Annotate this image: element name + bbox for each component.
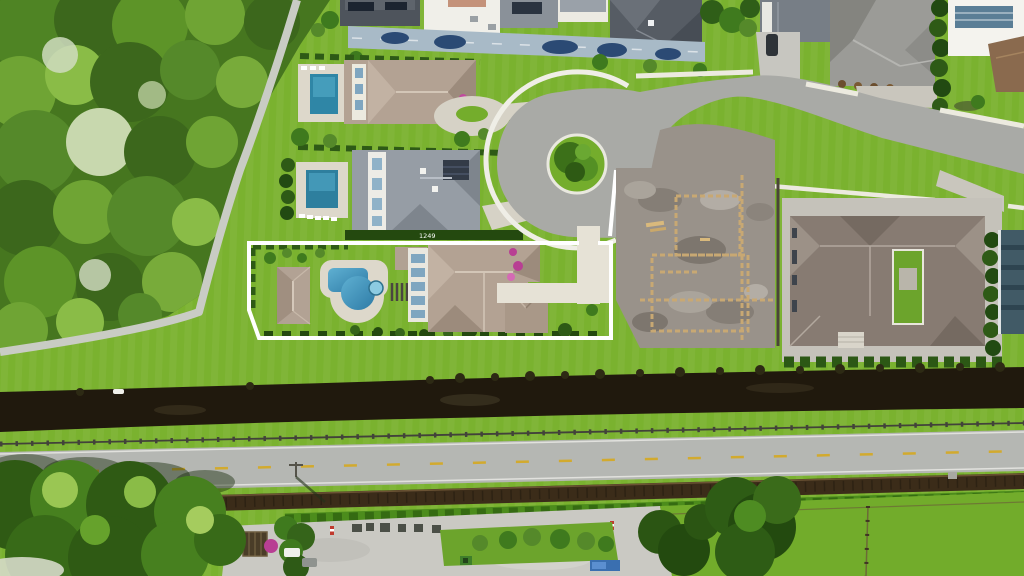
house-number: 1249 [419, 232, 436, 240]
spa [369, 281, 383, 295]
lounge-chairs [299, 214, 305, 218]
right-house [782, 198, 1024, 362]
aerial-scene: 1249 [0, 0, 1024, 576]
roof-weathered-gray [830, 0, 935, 92]
aerial-photo: 1249 [0, 0, 1024, 576]
bougainvillea [509, 248, 517, 256]
gray-car [302, 558, 317, 567]
boat [113, 389, 124, 394]
entry-steps [838, 332, 864, 348]
driveway-gap [579, 237, 598, 249]
guest-house [277, 267, 310, 324]
utility-box [948, 472, 957, 479]
white-car [284, 548, 300, 557]
palm-shadow [381, 32, 409, 44]
solar-panels [348, 2, 374, 11]
bottom-left-trees [0, 454, 246, 576]
palm-tree [971, 95, 985, 109]
parked-car [766, 34, 778, 56]
